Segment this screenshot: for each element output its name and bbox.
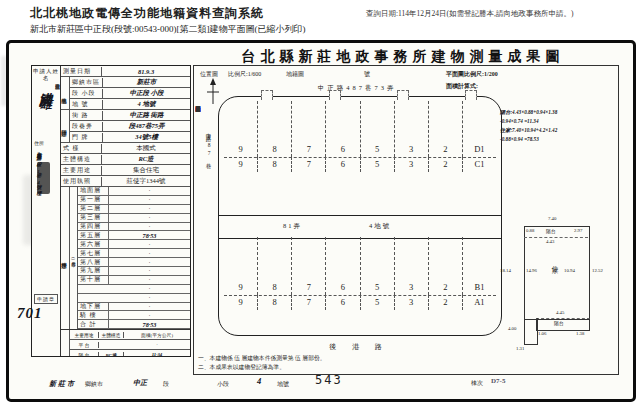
document-title: 台北縣新莊地政事務所建物測量成果圖 xyxy=(189,48,617,66)
unit-row-d: 9 8 7 6 5 3 2 D1 xyxy=(224,101,496,158)
floor-label: 合 計 xyxy=(78,320,109,328)
field-label: 門 牌 xyxy=(70,133,103,142)
unit-cell: 7 xyxy=(292,237,326,295)
address-label: 住所 xyxy=(34,140,44,146)
annex-area: · xyxy=(124,342,190,347)
floor-value: 78·53 xyxy=(109,321,190,328)
dim: 10.94 xyxy=(564,268,575,273)
floor-label: 第四層 xyxy=(78,223,109,231)
footer-section-label: 段 xyxy=(163,380,169,389)
unit-cell: 5 xyxy=(361,101,395,157)
area-calculations: 陽台:4.43×0.88+0.94×1.38 -0.94×0.74 =11.34… xyxy=(500,108,616,143)
field-value: 中正段 小段 xyxy=(103,89,190,98)
floor-label: 地面層 xyxy=(78,187,109,195)
north-arrow-icon xyxy=(206,78,220,106)
field-value: 81.9.3 xyxy=(102,68,190,75)
plan-scale: 平面圖比例尺:1/200 xyxy=(446,70,498,79)
floor-value: · xyxy=(109,223,190,230)
unit-floor-plan: 7.40 0.88 陽台 2.97 4.43 18.14 14.96 住家 10… xyxy=(498,216,616,368)
floor-table-side-label: 建坪面積 xyxy=(61,187,70,329)
field-label: 地 號 xyxy=(70,100,103,109)
floor-label: 第六層 xyxy=(78,240,109,248)
form-row: 鄉鎮市區 新莊市 xyxy=(70,77,190,88)
stair-tick xyxy=(465,90,477,100)
field-value: 34號5樓 xyxy=(103,133,190,142)
footer-lot: 4 xyxy=(257,376,261,386)
cadastre-label: 地籍圖 xyxy=(286,70,304,79)
calc-line: 陽台:4.43×0.88+0.94×1.38 xyxy=(500,108,616,117)
dim: 12.52 xyxy=(592,268,603,273)
floor-table-unit-label: (平方公尺) xyxy=(70,187,78,329)
floor-value: · xyxy=(109,214,190,221)
query-date: 查詢日期:114年12月24日(如需登記謄本,請向地政事務所申請。) xyxy=(366,9,573,19)
field-value: 中正路 街路 xyxy=(103,111,190,120)
annex-use: 陽 台 xyxy=(70,352,99,356)
form-row: 主體構造 RC造 xyxy=(61,154,190,165)
form-row: 門 牌 34號5樓 xyxy=(70,132,190,143)
footer-town-label: 鄉鎮市 xyxy=(85,380,103,389)
door-group: 建物門牌 街 路 中正路 街路 段巷弄 段487巷75弄 門 牌 34號5樓 xyxy=(61,110,190,143)
unit-cell: 9 xyxy=(224,157,258,172)
unit-cell: 2 xyxy=(429,101,463,157)
floor-value: · xyxy=(109,303,190,310)
footer-building-label: 棟次 xyxy=(471,379,483,388)
unit-cell: 6 xyxy=(326,101,360,157)
dim: 1.38 xyxy=(576,331,584,336)
applicant-company: 永達建設有限公司 xyxy=(55,80,60,160)
unit-cell: 8 xyxy=(258,237,292,295)
floor-label: 第五層 xyxy=(78,231,109,239)
unit-cell: 6 xyxy=(326,295,360,310)
field-label: 式 樣 xyxy=(61,144,102,153)
form-row: 使用執照 莊使字1344號 xyxy=(61,176,190,187)
annex-header: 面積(平方公尺) xyxy=(124,332,190,338)
floor-row: 第七層· xyxy=(78,249,190,258)
annex-header-row: 主要用途 主體構造 面積(平方公尺) xyxy=(70,330,190,340)
footer-lot-label: 地號 xyxy=(277,380,289,389)
floor-value: · xyxy=(109,294,190,301)
form-fields: 測量日期 81.9.3 基地坐落 鄉鎮市區 新莊市 段 小段 中正段 小段 地 … xyxy=(61,66,190,356)
alley-label: 81弄 xyxy=(283,222,302,231)
dim: 1.06 xyxy=(538,331,546,336)
annex-building-table: 附屬建物 主要用途 主體構造 面積(平方公尺) 平 台 · 陽 台 RC造 xyxy=(61,329,190,356)
field-label: 主要用途 xyxy=(61,166,102,175)
field-value: 集合住宅 xyxy=(102,166,190,175)
location-scale: 比例尺:1/600 xyxy=(228,70,261,79)
dim: 14.96 xyxy=(526,268,537,273)
scan-frame: 台北縣新莊地政事務所建物測量成果圖 申請人姓名 洪國雄 永達建設有限公司 住所 … xyxy=(6,40,636,402)
floor-row: 第八層· xyxy=(78,258,190,267)
balcony-label: 陽台 xyxy=(554,320,564,326)
site-group: 基地坐落 鄉鎮市區 新莊市 段 小段 中正段 小段 地 號 4 地號 xyxy=(61,77,190,110)
floor-label: 第七層 xyxy=(78,249,109,257)
application-form: 申請人姓名 洪國雄 永達建設有限公司 住所 台北市民生路2段79巷13號4樓 申… xyxy=(31,65,191,357)
receipt-number: 701 xyxy=(17,305,43,322)
floor-label: 第十層 xyxy=(78,276,109,284)
field-label: 測量日期 xyxy=(61,67,102,76)
unit-cell: B1 xyxy=(463,237,496,295)
floor-label: 第一層 xyxy=(78,196,109,204)
floor-row: 第一層· xyxy=(78,196,190,205)
floor-row: 第九層· xyxy=(78,267,190,276)
annex-side-label: 附屬建物 xyxy=(61,330,70,356)
floor-label: 地下層 xyxy=(78,303,109,311)
floor-label: 第三層 xyxy=(78,214,109,222)
site-group-label: 基地坐落 xyxy=(61,77,70,110)
field-value: 本國式 xyxy=(102,144,190,153)
stair-tick xyxy=(397,90,409,100)
field-value: 莊使字1344號 xyxy=(102,177,190,186)
floor-value: · xyxy=(109,250,190,257)
floor-row: · xyxy=(78,294,190,303)
field-label: 段巷弄 xyxy=(70,122,103,131)
floor-row: 第三層· xyxy=(78,214,190,223)
field-label: 街 路 xyxy=(70,111,103,120)
unit-cell: 9 xyxy=(224,101,258,157)
calc-line: 住家:7.40×10.94+4.2×1.42 xyxy=(500,126,616,135)
unit-cell: 6 xyxy=(326,157,360,172)
plan-appendix xyxy=(524,318,538,345)
floor-value: · xyxy=(109,285,190,292)
floor-value: · xyxy=(109,187,190,194)
unit-cell: 2 xyxy=(429,157,463,172)
floor-row: 地面層· xyxy=(78,187,190,196)
street-label-left: 中正路487巷 xyxy=(206,128,213,240)
unit-cell: 3 xyxy=(395,237,429,295)
floor-row: 第五層78·53 xyxy=(78,231,190,240)
field-label: 鄉鎮市區 xyxy=(70,78,103,87)
plan-outline xyxy=(524,226,590,320)
unit-cell: 8 xyxy=(258,157,292,172)
survey-map: 位置圖 比例尺:1/600 地籍圖 號 平面圖比例尺:1/200 面積計算式: … xyxy=(193,65,619,375)
floor-label: 第八層 xyxy=(78,258,109,266)
dim: 4.43 xyxy=(546,239,554,244)
applicant-name: 洪國雄 xyxy=(36,82,54,88)
floor-value: · xyxy=(109,276,190,283)
calc-line: -0.94×0.74 =11.34 xyxy=(500,117,616,126)
unit-cell: D1 xyxy=(463,101,496,157)
applicant-stamp-box: 申請章 xyxy=(34,294,58,304)
unit-cell: 3 xyxy=(395,295,429,310)
footer-page-number: 543 xyxy=(315,373,343,387)
unit-cell: 3 xyxy=(395,101,429,157)
residence-label: 住家 xyxy=(550,260,559,262)
dim: 4.00 xyxy=(508,326,516,331)
floor-row: 第十層· xyxy=(78,276,190,285)
floor-label: 第九層 xyxy=(78,267,109,275)
unit-cell: A1 xyxy=(463,295,496,310)
floor-value: · xyxy=(109,196,190,203)
field-value: 新莊市 xyxy=(103,78,190,87)
unit-cell: 7 xyxy=(292,157,326,172)
dim: 4.45 xyxy=(556,310,564,315)
floor-label: 第二層 xyxy=(78,205,109,213)
unit-cell: 7 xyxy=(292,101,326,157)
stair-tick xyxy=(261,90,273,100)
annex-area: 11·34 xyxy=(124,352,190,356)
dim: 2.97 xyxy=(574,228,582,233)
floor-row: · xyxy=(78,285,190,294)
middle-alley: 81弄 4地號 xyxy=(219,215,501,239)
survey-notes: 一、本建物係 伍 層建物本件係測量第 伍 層部份。 二、本成果表以建物登記簿為準… xyxy=(198,354,326,373)
unit-cell: 7 xyxy=(292,295,326,310)
door-group-label: 建物門牌 xyxy=(61,110,70,143)
dim: 1.31 xyxy=(516,346,524,351)
form-row: 主要用途 集合住宅 xyxy=(61,165,190,176)
street-label-top: 中正路487巷73弄 xyxy=(252,84,462,93)
document-subtitle: 新北市新莊區中正段(段號:00543-000)[第二類]建物平面圖(已縮小列印) xyxy=(30,23,305,36)
unit-cell: 2 xyxy=(429,295,463,310)
side-note: 建物平面圖及建物面積係依使用執照設計圖為藍本之平面圖精製 xyxy=(195,102,200,334)
floor-value: · xyxy=(109,259,190,266)
unit-cell: 3 xyxy=(395,157,429,172)
lot-number-label: 4地號 xyxy=(369,222,391,231)
unit-cell: 6 xyxy=(326,237,360,295)
field-label: 主體構造 xyxy=(61,155,102,164)
annex-header: 主體構造 xyxy=(99,332,124,338)
annex-use: 平 台 xyxy=(70,342,99,348)
form-row: 段巷弄 段487巷75弄 xyxy=(70,121,190,132)
annex-header: 主要用途 xyxy=(70,332,99,338)
floor-value: · xyxy=(109,312,190,319)
unit-cell: 5 xyxy=(361,295,395,310)
form-row: 街 路 中正路 街路 xyxy=(70,110,190,121)
footer-subsection-label: 小段 xyxy=(217,380,229,389)
dim-top: 7.40 xyxy=(548,216,556,221)
field-label: 使用執照 xyxy=(61,177,102,186)
form-row: 測量日期 81.9.3 xyxy=(61,66,190,77)
cadastre-number-label: 號 xyxy=(364,70,370,79)
form-row: 式 樣 本國式 xyxy=(61,143,190,154)
floor-row: 第二層· xyxy=(78,205,190,214)
system-title: 北北桃地政電傳全功能地籍資料查詢系統 xyxy=(30,5,264,22)
unit-cell: 2 xyxy=(429,237,463,295)
note-line: 一、本建物係 伍 層建物本件係測量第 伍 層部份。 xyxy=(198,354,326,363)
unit-cell: 9 xyxy=(224,237,258,295)
form-row: 段 小段 中正段 小段 xyxy=(70,88,190,99)
footer-town: 新莊市 xyxy=(49,379,76,389)
floor-value: · xyxy=(109,267,190,274)
floor-value: · xyxy=(109,205,190,212)
building-block: 9 8 7 6 5 3 2 D1 9 8 7 6 5 3 2 C1 81弄 xyxy=(218,96,502,336)
street-label-bottom: 後 港 路 xyxy=(218,342,500,352)
applicant-address: 台北市民生路2段79巷13號4樓 xyxy=(35,148,41,273)
floor-value: · xyxy=(109,241,190,248)
unit-row-c: 9 8 7 6 5 3 2 C1 xyxy=(224,157,496,215)
floor-area-table: 建坪面積 (平方公尺) 地面層· 第一層· 第二層· 第三層· 第四層· 第五層… xyxy=(61,187,190,329)
floor-row: 騎 樓· xyxy=(78,311,190,320)
dim: 18.14 xyxy=(500,268,511,273)
unit-cell: 5 xyxy=(361,237,395,295)
unit-cell: C1 xyxy=(463,157,496,172)
floor-row: 第六層· xyxy=(78,240,190,249)
floor-label: 騎 樓 xyxy=(78,311,109,319)
footer-section: 中正 xyxy=(133,378,147,388)
unit-row-b: 9 8 7 6 5 3 2 B1 xyxy=(224,237,496,296)
unit-cell: 8 xyxy=(258,101,292,157)
calc-line: -0.88×0.94 =78.53 xyxy=(500,135,616,144)
form-row: 地 號 4 地號 xyxy=(70,99,190,110)
unit-row-a: 9 8 7 6 5 3 2 A1 xyxy=(224,295,496,331)
note-line: 二、本成果表以建物登記簿為準。 xyxy=(198,363,326,372)
annex-struct: RC造 xyxy=(99,352,124,356)
floor-row: 第四層· xyxy=(78,223,190,232)
dim: 0.88 xyxy=(526,228,534,233)
floor-row: 合 計78·53 xyxy=(78,320,190,329)
unit-cell: 8 xyxy=(258,295,292,310)
stair-tick xyxy=(329,90,341,100)
field-label: 段 小段 xyxy=(70,89,103,98)
unit-cell: 5 xyxy=(361,157,395,172)
floor-row: 地下層· xyxy=(78,303,190,312)
field-value: RC造 xyxy=(102,155,190,164)
annex-row: 平 台 · xyxy=(70,340,190,350)
field-value: 段487巷75弄 xyxy=(103,122,190,131)
balcony-label: 陽台 xyxy=(546,228,556,234)
footer-building-number: D7-5 xyxy=(491,377,505,385)
annex-row: 陽 台 RC造 11·34 xyxy=(70,350,190,356)
unit-cell: 9 xyxy=(224,295,258,310)
floor-value: 78·53 xyxy=(109,232,190,239)
field-value: 4 地號 xyxy=(103,100,190,109)
